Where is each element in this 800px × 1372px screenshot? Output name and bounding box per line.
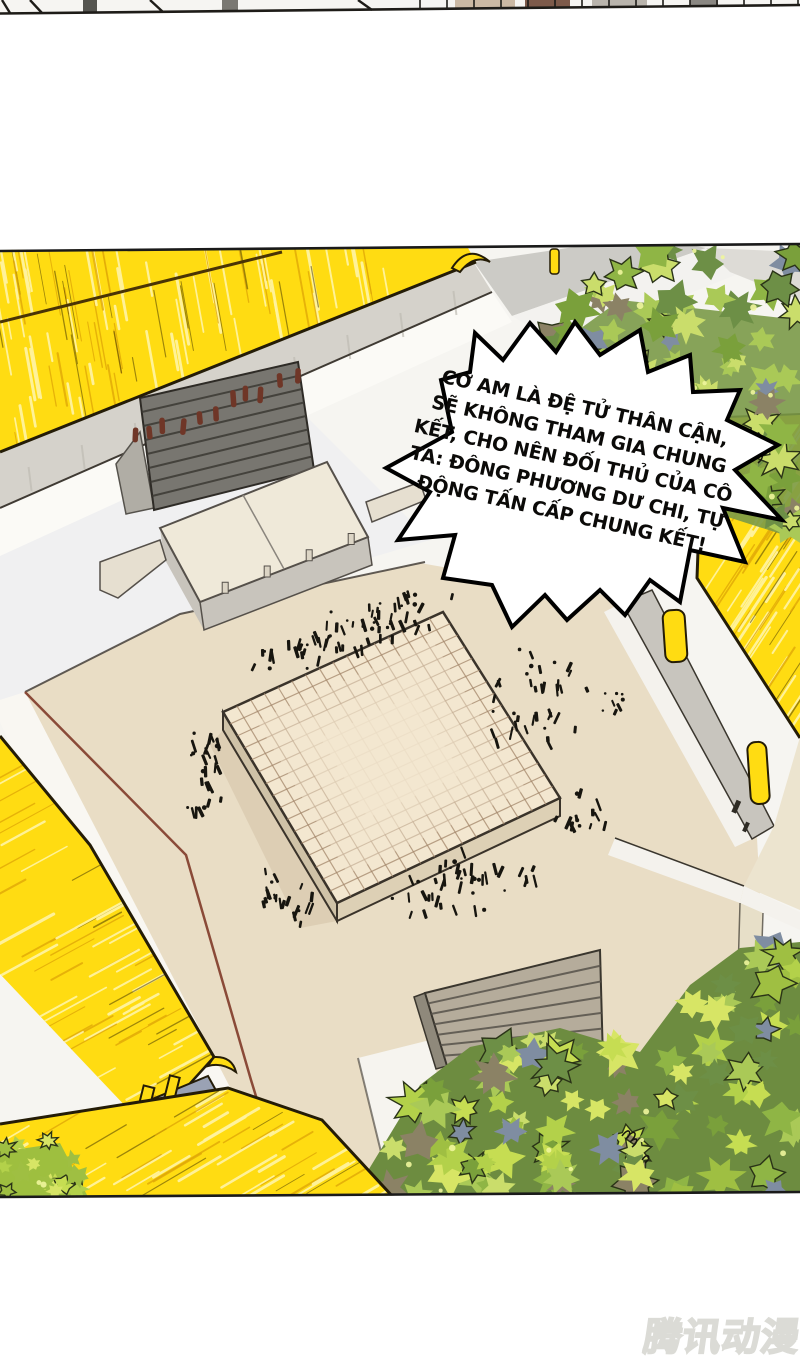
comic-page: CƠ AM LÀ ĐỆ TỬ THÂN CẬN, SẼ KHÔNG THAM G… — [0, 0, 800, 1372]
watermark-tencent-comics: 腾讯动漫 — [640, 1310, 800, 1364]
scene-illustration — [0, 0, 800, 1372]
small-pillar — [550, 249, 559, 274]
yellow-pillar-upper — [662, 609, 688, 662]
yellow-pillar-lower — [747, 741, 770, 804]
